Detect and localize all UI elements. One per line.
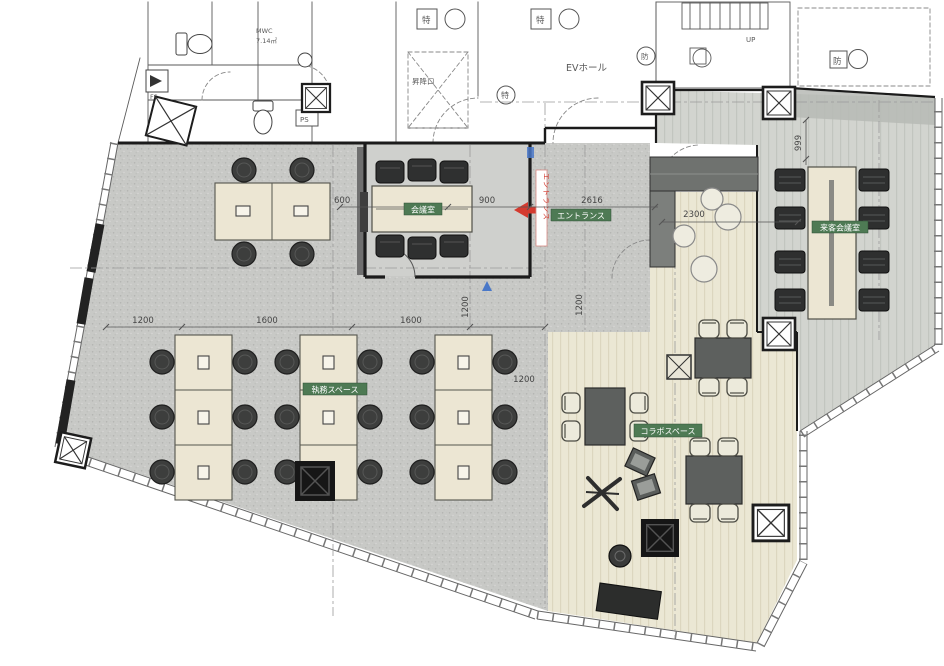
toku-label: 特 (536, 15, 545, 26)
stool (691, 256, 717, 282)
chair (408, 159, 436, 181)
chair (775, 289, 805, 311)
terrace-dashed (798, 8, 930, 86)
badge-work-space: 執務スペース (303, 383, 367, 395)
bou-label: 防 (833, 56, 842, 67)
meeting-room-label: 会議室 (411, 205, 435, 215)
dim-1200-v: 1200 (575, 294, 585, 316)
sink-icon (298, 53, 312, 67)
toilet-icon (254, 110, 272, 134)
wc-area-label: 7.14㎡ (256, 36, 277, 45)
up-label: UP (746, 36, 755, 44)
toilet-icon (188, 35, 212, 54)
dim-1200: 1200 (132, 316, 154, 326)
door-arc (202, 72, 230, 100)
badge-guest-meeting: 来客会議室 (812, 221, 868, 233)
chair (859, 289, 889, 311)
chair (440, 235, 468, 257)
chair (562, 421, 580, 441)
chair (376, 161, 404, 183)
chair (699, 378, 719, 396)
monitor-icon (236, 206, 250, 216)
work-space-label: 執務スペース (311, 385, 358, 395)
chair (562, 393, 580, 413)
display-board (360, 192, 368, 232)
sensor-marker-icon (527, 147, 534, 158)
chair (232, 242, 256, 266)
dim-900: 900 (479, 196, 495, 206)
entrance-label: エントランス (557, 212, 605, 221)
door-arc (553, 98, 598, 143)
chair (775, 169, 805, 191)
chair (859, 251, 889, 273)
collab-space-label: コラボスペース (640, 427, 695, 436)
table (695, 338, 751, 378)
elevator-icon (763, 87, 795, 119)
elevator-icon (302, 84, 330, 112)
chair (440, 161, 468, 183)
elevator-icon (753, 505, 789, 541)
ps-label: PS (300, 116, 309, 124)
toku-label: 特 (422, 15, 431, 26)
chair (727, 378, 747, 396)
chair (408, 237, 436, 259)
floor-plan-svg: EVホール 昇降口 MWC 7.14㎡ PS FS UP 特 特 特 防 防 (0, 0, 944, 666)
ev-hall-label: EVホール (566, 63, 608, 74)
chair (699, 320, 719, 338)
chair (775, 251, 805, 273)
dim-1200: 1200 (513, 375, 535, 385)
stool (609, 545, 631, 567)
dim-1600: 1600 (256, 316, 278, 326)
table (585, 388, 625, 445)
chair (232, 158, 256, 182)
elevator-icon (642, 82, 674, 114)
chair (290, 242, 314, 266)
entrance-sign-vertical-label: エントランス (542, 173, 550, 221)
dim-2300: 2300 (683, 210, 705, 220)
dim-1200-v: 1200 (461, 296, 471, 318)
table (686, 456, 742, 504)
side-table-x (667, 355, 691, 379)
chair (859, 169, 889, 191)
chair (376, 235, 404, 257)
counter (650, 191, 675, 267)
chair (775, 207, 805, 229)
chair (718, 504, 738, 522)
chair (727, 320, 747, 338)
desk-column-1 (150, 335, 257, 500)
floor-plan-page: EVホール 昇降口 MWC 7.14㎡ PS FS UP 特 特 特 防 防 (0, 0, 944, 666)
hoistway-label: 昇降口 (412, 76, 435, 86)
elevator-icon (55, 432, 91, 468)
bou-label: 防 (641, 51, 649, 61)
monitor-icon (294, 206, 308, 216)
fs-shaft-icon (146, 97, 196, 146)
dim-600: 600 (334, 196, 350, 206)
desk-column-3 (410, 335, 517, 500)
dim-2616: 2616 (581, 196, 603, 206)
chair (630, 393, 648, 413)
dim-1600: 1600 (400, 316, 422, 326)
guest-meeting-label: 来客会議室 (820, 223, 860, 233)
badge-meeting-room: 会議室 (404, 203, 442, 215)
toku-label: 特 (501, 90, 509, 100)
wc-name-label: MWC (256, 27, 273, 35)
chair (690, 438, 710, 456)
dim-999: 999 (794, 135, 804, 151)
stool (673, 225, 695, 247)
chair (718, 438, 738, 456)
elevator-icon (763, 318, 795, 350)
badge-collab-space: コラボスペース (634, 424, 702, 437)
chair (690, 504, 710, 522)
badge-entrance: エントランス (551, 209, 611, 221)
toilet-icon (176, 33, 187, 55)
stool (715, 204, 741, 230)
column-icon (295, 461, 335, 501)
door-arc (433, 98, 478, 143)
column-icon (641, 519, 679, 557)
chair (290, 158, 314, 182)
